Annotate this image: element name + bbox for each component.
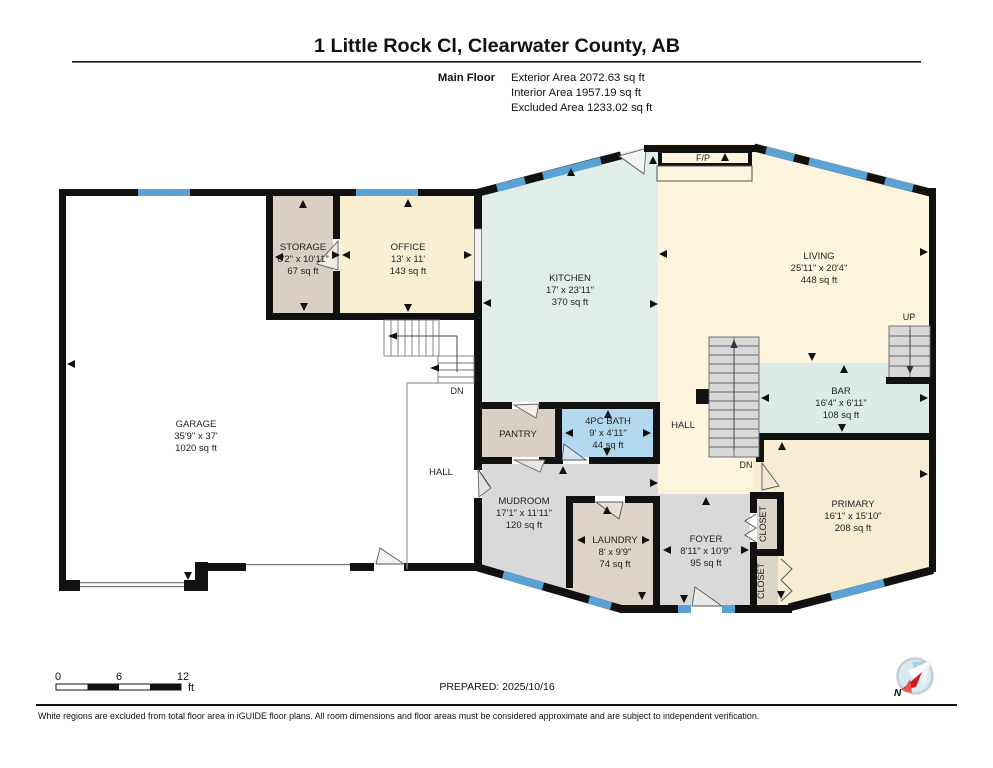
svg-text:Interior Area 1957.19 sq ft: Interior Area 1957.19 sq ft [511, 87, 642, 99]
svg-text:BAR: BAR [831, 386, 851, 397]
svg-text:6'2" x 10'11": 6'2" x 10'11" [277, 254, 328, 265]
svg-text:8'11" x 10'9": 8'11" x 10'9" [680, 546, 731, 557]
svg-text:9' x 4'11": 9' x 4'11" [589, 428, 626, 439]
svg-text:DN: DN [740, 460, 753, 470]
svg-text:448 sq ft: 448 sq ft [801, 275, 838, 286]
svg-text:FOYER: FOYER [690, 534, 723, 545]
svg-text:N: N [894, 688, 902, 699]
svg-text:74 sq ft: 74 sq ft [599, 559, 631, 570]
svg-text:F/P: F/P [696, 153, 710, 163]
svg-text:CLOSET: CLOSET [758, 505, 768, 542]
svg-text:1 Little Rock Cl, Clearwater C: 1 Little Rock Cl, Clearwater County, AB [314, 35, 680, 57]
svg-text:35'9" x 37': 35'9" x 37' [174, 431, 218, 442]
svg-text:4PC BATH: 4PC BATH [585, 416, 631, 427]
svg-text:CLOSET: CLOSET [756, 562, 766, 599]
svg-text:8' x 9'9": 8' x 9'9" [599, 547, 632, 558]
svg-text:108 sq ft: 108 sq ft [823, 410, 860, 421]
svg-text:1020 sq ft: 1020 sq ft [175, 443, 217, 454]
svg-text:95 sq ft: 95 sq ft [690, 558, 722, 569]
svg-text:KITCHEN: KITCHEN [549, 273, 591, 284]
svg-text:GARAGE: GARAGE [176, 419, 217, 430]
svg-text:44 sq ft: 44 sq ft [592, 440, 624, 451]
svg-text:PREPARED: 2025/10/16: PREPARED: 2025/10/16 [439, 681, 555, 693]
svg-text:Main Floor: Main Floor [438, 72, 496, 84]
svg-text:17'1" x 11'11": 17'1" x 11'11" [496, 508, 552, 519]
svg-text:DN: DN [451, 386, 464, 396]
svg-text:White regions are excluded fro: White regions are excluded from total fl… [38, 711, 759, 721]
svg-text:120 sq ft: 120 sq ft [506, 520, 543, 531]
svg-text:UP: UP [903, 312, 916, 322]
svg-text:6: 6 [116, 671, 122, 683]
svg-text:370 sq ft: 370 sq ft [552, 297, 589, 308]
svg-text:LAUNDRY: LAUNDRY [592, 535, 638, 546]
svg-text:16'4" x 6'11": 16'4" x 6'11" [815, 398, 866, 409]
svg-text:Exterior Area 2072.63 sq ft: Exterior Area 2072.63 sq ft [511, 72, 646, 84]
svg-text:STORAGE: STORAGE [280, 242, 326, 253]
svg-text:16'1" x 15'10": 16'1" x 15'10" [824, 511, 881, 522]
svg-text:25'11" x 20'4": 25'11" x 20'4" [791, 263, 848, 274]
svg-text:17' x 23'11": 17' x 23'11" [546, 285, 594, 296]
svg-text:13' x 11': 13' x 11' [391, 254, 425, 265]
svg-text:PRIMARY: PRIMARY [831, 499, 875, 510]
svg-text:208 sq ft: 208 sq ft [835, 523, 872, 534]
svg-text:LIVING: LIVING [803, 251, 834, 262]
svg-text:67 sq ft: 67 sq ft [287, 266, 319, 277]
svg-text:143 sq ft: 143 sq ft [390, 266, 427, 277]
svg-text:MUDROOM: MUDROOM [498, 496, 549, 507]
svg-text:0: 0 [55, 671, 61, 683]
svg-text:Excluded Area 1233.02 sq ft: Excluded Area 1233.02 sq ft [511, 102, 653, 114]
svg-text:HALL: HALL [429, 467, 453, 478]
svg-text:OFFICE: OFFICE [391, 242, 426, 253]
svg-text:PANTRY: PANTRY [499, 429, 537, 440]
svg-text:ft: ft [188, 682, 194, 694]
svg-text:HALL: HALL [671, 420, 695, 431]
